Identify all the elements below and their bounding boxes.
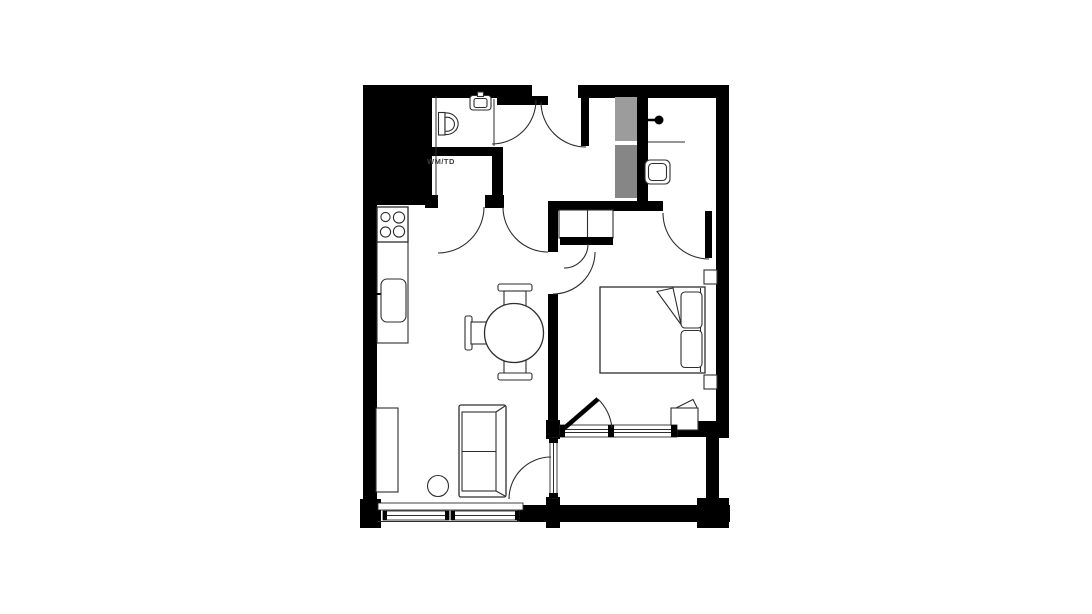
wall-service-block	[363, 85, 432, 205]
bedroom-window	[560, 425, 677, 437]
wardrobe-icon	[559, 210, 613, 245]
burner	[393, 226, 404, 237]
wall-right	[716, 85, 729, 438]
burner	[381, 212, 390, 221]
nightstand-top	[704, 270, 717, 284]
toilet-bowl-inner	[445, 117, 454, 131]
pillow	[681, 331, 702, 368]
window-sill	[378, 503, 523, 510]
duct-upper	[615, 97, 637, 141]
wall-entry-lintel	[497, 96, 548, 105]
mullion	[445, 511, 449, 520]
door-frame-tick	[549, 493, 558, 498]
balcony-side-door	[549, 438, 558, 498]
basin-tap	[478, 92, 484, 97]
window-band	[560, 425, 677, 437]
mullion	[671, 425, 677, 437]
bed-icon	[600, 287, 705, 373]
chair-back	[498, 373, 532, 380]
wardrobe-front-bar	[560, 237, 613, 245]
ensuite-door-leaf	[705, 211, 712, 258]
mullion	[451, 511, 455, 520]
basin-inner	[649, 164, 667, 181]
duct	[615, 97, 637, 198]
mullion	[515, 511, 519, 520]
wall-living-bedroom-upper	[548, 201, 558, 252]
wall-corner-bottom-right	[697, 498, 729, 528]
floor-plan-page: WM/TD	[0, 0, 1092, 614]
sofa-icon	[459, 405, 506, 497]
sink-basin	[381, 279, 406, 322]
wall-left	[363, 205, 377, 505]
wall-top-right	[578, 85, 729, 98]
utility-label: WM/TD	[427, 157, 455, 166]
burner	[393, 212, 404, 223]
kitchen	[375, 207, 408, 343]
burner	[380, 227, 390, 237]
stool	[428, 476, 449, 497]
hob-outline	[377, 207, 408, 242]
duct-lower	[615, 145, 637, 198]
wall-living-bedroom-lower	[548, 294, 558, 434]
wall-balcony-right	[706, 430, 719, 507]
wall-bathroom-divider	[425, 147, 493, 156]
chair-back	[498, 284, 532, 291]
mullion	[608, 425, 614, 437]
mullion	[383, 511, 387, 520]
hob-icon	[377, 207, 408, 242]
wall-duct-right	[637, 97, 648, 204]
nightstand-bottom	[704, 375, 717, 389]
wardrobe-outline	[559, 210, 613, 238]
tv-bench	[376, 408, 398, 492]
basin-inner	[474, 99, 487, 108]
door-frame-tick	[549, 438, 558, 443]
wall-hall-stub-middle	[485, 195, 504, 208]
shower-rose	[655, 116, 664, 125]
dining-table-icon	[485, 304, 544, 363]
toilet-cistern	[439, 113, 446, 136]
wall-balcony-left-upper	[546, 420, 560, 439]
floor-plan: WM/TD	[0, 0, 1092, 614]
wall-hall-stub-left	[425, 195, 438, 208]
wall-bathroom-right	[492, 147, 503, 195]
pillow	[681, 292, 702, 328]
entrance-door-leaf	[581, 98, 589, 146]
